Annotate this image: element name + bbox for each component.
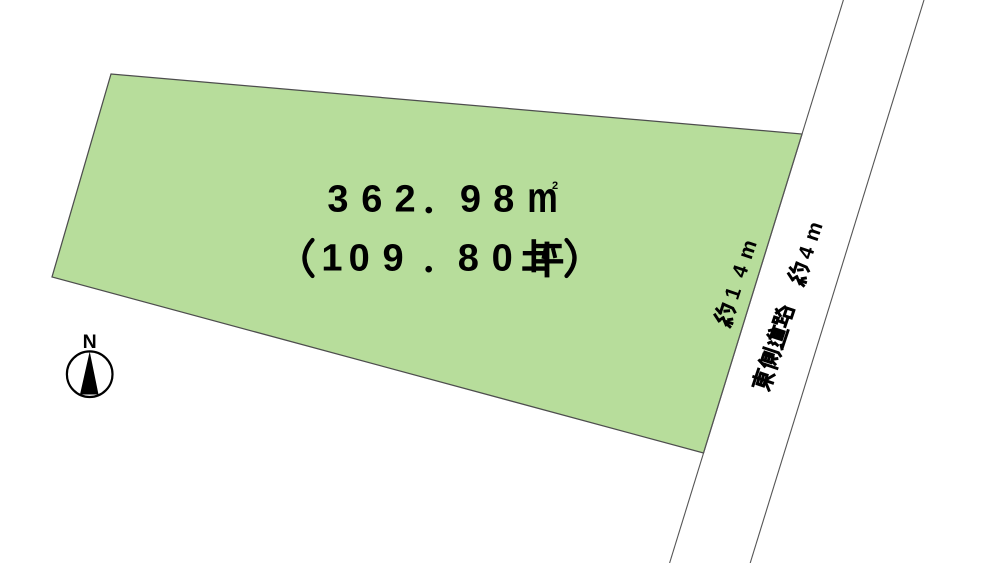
svg-text:0: 0 <box>349 238 370 280</box>
svg-text:m: m <box>800 219 828 244</box>
svg-text:2: 2 <box>552 180 558 192</box>
svg-text:3: 3 <box>327 179 348 221</box>
svg-text:2: 2 <box>395 179 416 221</box>
svg-text:8: 8 <box>493 179 514 221</box>
svg-text:9: 9 <box>383 238 404 280</box>
svg-text:8: 8 <box>458 238 479 280</box>
svg-text:1: 1 <box>321 238 342 280</box>
svg-text:9: 9 <box>460 179 481 221</box>
svg-text:N: N <box>83 331 97 353</box>
svg-text:0: 0 <box>492 238 513 280</box>
svg-text:4: 4 <box>794 243 820 262</box>
svg-text:6: 6 <box>361 179 382 221</box>
